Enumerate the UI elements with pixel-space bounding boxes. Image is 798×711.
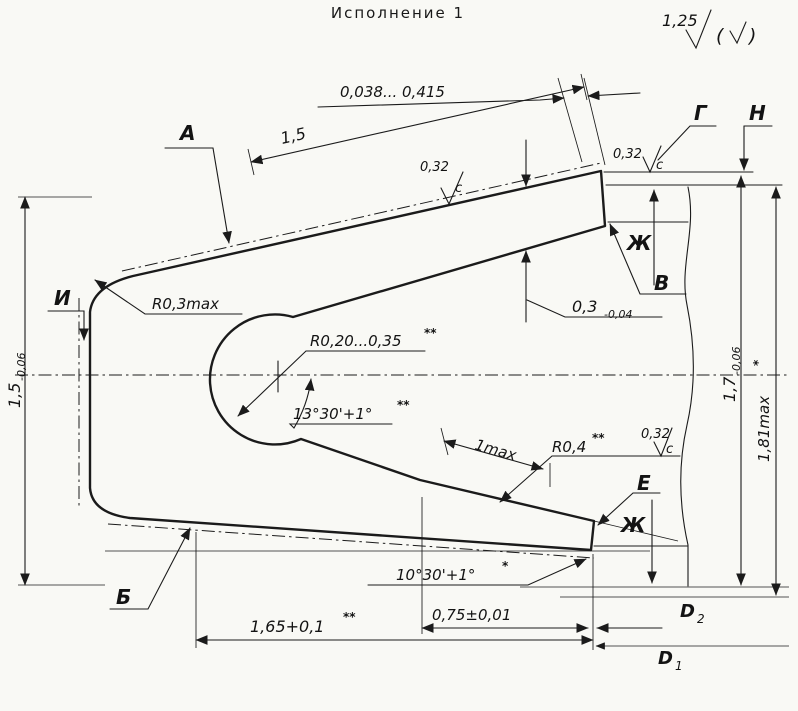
finish-paren-close: ): [747, 25, 756, 47]
roughness-value-top-mid: 0,32: [420, 160, 449, 175]
label-d1-sub: 1: [675, 659, 683, 673]
dim-land-width: 0,75±0,01: [432, 606, 511, 624]
dim-inner-radius: R0,20...0,35: [310, 332, 402, 350]
dim-inner-radius-note: **: [424, 326, 437, 340]
roughness-symbols: [441, 10, 746, 456]
dim-right-max-group: 1,81max *: [751, 359, 773, 462]
break-line: [681, 187, 694, 586]
roughness-check-header-alt: [730, 22, 746, 43]
dim-top-angle: 13°30'+1°: [293, 405, 372, 423]
finish-paren-open: (: [716, 25, 725, 47]
label-d2: D: [680, 601, 695, 622]
label-zh-bottom: Ж: [619, 513, 646, 537]
roughness-letter-top-mid: c: [455, 181, 462, 196]
dim-right-height-tol: -0,06: [730, 347, 743, 375]
roughness-letter-tip: c: [656, 158, 663, 173]
label-d1: D: [658, 648, 673, 669]
dim-left-height: 1,5: [5, 383, 24, 408]
extension-lines: [18, 74, 789, 650]
roughness-value-bottom: 0,32: [641, 427, 670, 442]
leader-r-bottom: [500, 456, 680, 502]
label-d2-sub: 2: [697, 612, 705, 626]
leader-g: [658, 126, 716, 160]
dimension-lines: [25, 87, 789, 646]
dim-gap-range: 0,038... 0,415: [340, 83, 445, 101]
drawing-sheet: Исполнение 1 1,25 ( ) А Г Н И В Е Б Ж Ж …: [0, 0, 798, 711]
dim-top-angle-note: **: [397, 398, 410, 412]
roughness-value-tip: 0,32: [613, 147, 642, 162]
finish-value: 1,25: [662, 11, 698, 30]
dim-tip-thickness: 0,3: [572, 297, 597, 316]
label-a: А: [178, 121, 195, 145]
roughness-letter-bottom: c: [666, 442, 673, 457]
dim-land-length: 1max: [473, 436, 519, 465]
dim-left-height-tol: -0,06: [15, 353, 28, 381]
dim-bottom-radius-note: **: [592, 431, 605, 445]
surface-a-line: [122, 163, 601, 271]
dim-bottom-radius: R0,4: [552, 438, 586, 456]
label-zh-top: Ж: [625, 231, 652, 255]
label-n: Н: [749, 101, 766, 125]
drawing-title: Исполнение 1: [331, 4, 465, 22]
dim-left-radius: R0,3max: [152, 295, 219, 313]
leader-angle-top: [290, 424, 392, 428]
surface-b-line: [108, 524, 594, 558]
dim-right-height: 1,7: [720, 376, 739, 402]
label-b: Б: [116, 585, 131, 609]
label-g: Г: [694, 101, 708, 125]
label-i: И: [54, 286, 71, 310]
dim-right-height-max: 1,81max: [755, 396, 773, 462]
dim-right-height-group: 1,7 -0,06: [720, 347, 743, 402]
dim-slot-depth: 1,65+0,1: [250, 617, 324, 636]
label-e: Е: [637, 471, 651, 495]
dim-top-length: 1,5: [279, 124, 308, 148]
dim-right-height-max-note: *: [751, 359, 765, 366]
technical-drawing: Исполнение 1 1,25 ( ) А Г Н И В Е Б Ж Ж …: [0, 0, 798, 711]
dim-tip-thickness-tol: -0,04: [604, 308, 632, 321]
dim-bottom-angle-note: *: [502, 559, 509, 573]
ring-cross-section: [90, 171, 605, 550]
leader-a: [165, 148, 229, 243]
label-v: В: [654, 271, 669, 295]
dim-bottom-angle: 10°30'+1°: [396, 566, 475, 584]
dim-slot-depth-note: **: [343, 610, 356, 624]
